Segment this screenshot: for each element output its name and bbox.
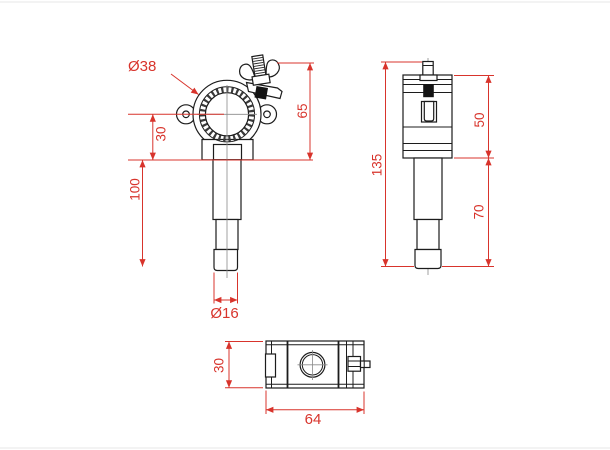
side-slot-bolt	[424, 102, 433, 122]
dim-front-tip-diameter: Ø16	[210, 273, 238, 323]
dim-label-bottom-30: 30	[212, 358, 227, 373]
dim-label-side-70: 70	[472, 204, 487, 219]
side-spigot-upper	[414, 158, 442, 220]
dim-label-front-100: 100	[128, 178, 143, 201]
bottom-hinge-pin	[266, 354, 276, 377]
front-spigot-tip	[214, 250, 238, 271]
dim-side-body-height: 50	[472, 76, 489, 159]
side-bolt-top	[423, 62, 433, 76]
bottom-bolt-shaft	[361, 361, 371, 368]
bottom-view	[266, 341, 371, 388]
dim-side-total-height: 135	[370, 62, 386, 267]
front-hex-nut	[214, 145, 242, 160]
front-wing-nut	[238, 53, 282, 87]
dim-label-side-135: 135	[370, 154, 385, 177]
dim-label-side-50: 50	[472, 112, 487, 127]
dim-front-spigot-length: 100	[128, 160, 143, 267]
dim-label-front-d16: Ø16	[210, 305, 238, 322]
front-bolt-thread-block	[255, 86, 269, 100]
dim-label-front-d38: Ø38	[128, 58, 156, 75]
side-spigot-mid	[417, 220, 439, 250]
front-right-lug-hole	[264, 111, 271, 118]
front-view	[177, 53, 283, 278]
wing-nut-collar	[252, 74, 270, 85]
dim-side-spigot-length: 70	[472, 158, 489, 267]
dim-label-front-30: 30	[154, 126, 169, 141]
dim-front-overall-height: 65	[295, 63, 310, 160]
side-view	[403, 58, 452, 275]
dim-bottom-width: 64	[266, 410, 364, 428]
side-bolt-washer	[420, 75, 437, 81]
side-spigot-tip	[415, 250, 441, 269]
dim-label-bottom-64: 64	[305, 411, 322, 428]
technical-drawing: 30 100 65 Ø38 Ø16 135	[0, 0, 610, 450]
side-bolt-threads	[423, 84, 434, 97]
dim-bottom-depth: 30	[212, 342, 230, 388]
dim-front-center-to-base: 30	[153, 114, 169, 160]
drawing-canvas: 30 100 65 Ø38 Ø16 135	[0, 0, 610, 450]
dim-front-tube-diameter: Ø38	[128, 58, 199, 95]
dim-label-front-65: 65	[295, 103, 310, 118]
bottom-bolt-head	[348, 357, 361, 372]
